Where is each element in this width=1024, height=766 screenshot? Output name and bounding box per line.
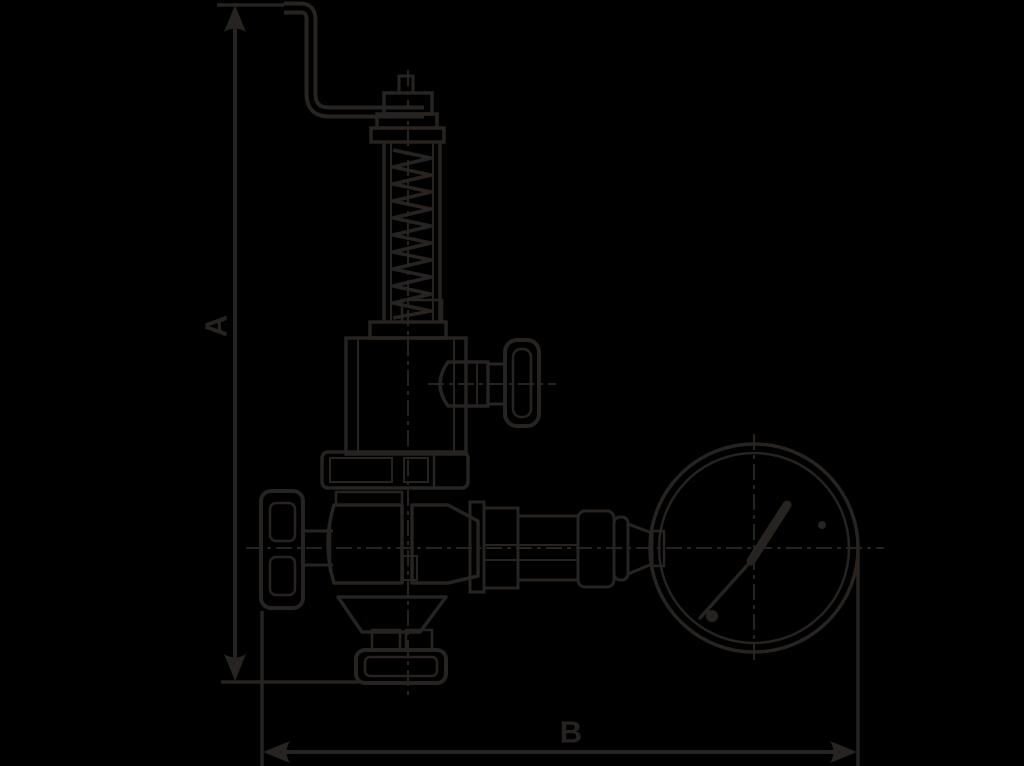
gauge-dot-right (818, 521, 826, 529)
spring-coil (393, 150, 431, 318)
arrow-left-icon (263, 741, 290, 763)
inlet-wheel-spoke-top (270, 503, 295, 541)
lever-bar-outer (284, 8, 424, 112)
dimension-a-label: A (201, 315, 232, 337)
valve-technical-drawing (0, 0, 1024, 766)
valve-body (328, 492, 478, 650)
gauge-needle (751, 505, 787, 561)
body-left-block (328, 505, 402, 583)
bottom-flange-rim (356, 650, 446, 683)
bottom-flange-inner (365, 657, 437, 676)
lever-bracket (284, 8, 424, 112)
stem-guide (403, 556, 417, 580)
arrow-right-icon (830, 741, 857, 763)
bonnet (346, 300, 466, 454)
spring-housing (370, 142, 446, 338)
outlet-flange (356, 650, 446, 683)
body-top-band (336, 492, 402, 505)
union-flange (322, 452, 468, 488)
drawing-stage: A B (0, 0, 1024, 766)
gauge-dot-lower (706, 610, 718, 622)
dimension-b-label: B (560, 717, 582, 748)
body-lower-neck (338, 597, 446, 632)
adjusting-screw-tip (399, 76, 413, 93)
arrow-down-icon (224, 654, 246, 681)
inlet-handwheel (261, 491, 333, 608)
gauge-needle-tail (700, 561, 751, 618)
arrow-up-icon (224, 5, 246, 32)
inlet-wheel-rim (261, 491, 303, 608)
centerlines (246, 70, 884, 700)
inlet-wheel-spoke-bottom (270, 557, 295, 595)
union-inner (330, 458, 392, 482)
bonnet-body (346, 338, 466, 454)
body-right-block (412, 505, 478, 583)
